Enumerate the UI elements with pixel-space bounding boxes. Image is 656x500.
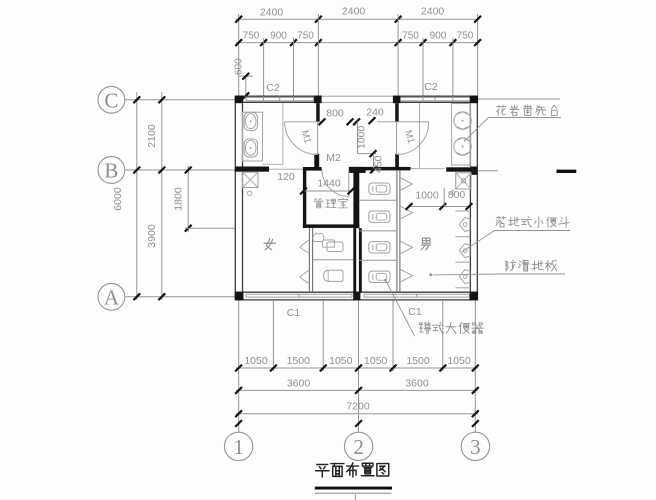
svg-text:1500: 1500 — [406, 355, 430, 367]
svg-text:240: 240 — [366, 107, 384, 119]
svg-text:3600: 3600 — [405, 377, 429, 389]
svg-text:800: 800 — [326, 108, 344, 120]
svg-text:750: 750 — [243, 31, 260, 42]
svg-text:2400: 2400 — [342, 6, 366, 18]
svg-text:750: 750 — [457, 31, 474, 42]
svg-text:750: 750 — [402, 31, 419, 42]
svg-text:3: 3 — [470, 435, 481, 459]
svg-text:120: 120 — [277, 171, 295, 183]
svg-text:600: 600 — [234, 58, 245, 75]
svg-text:M2: M2 — [326, 152, 341, 164]
svg-text:1050: 1050 — [329, 355, 353, 367]
svg-text:1000: 1000 — [356, 125, 368, 149]
svg-text:C: C — [104, 88, 118, 112]
svg-text:900: 900 — [270, 31, 287, 42]
svg-text:C1: C1 — [408, 306, 422, 318]
svg-text:900: 900 — [430, 31, 447, 42]
svg-text:1500: 1500 — [287, 355, 311, 367]
svg-text:2400: 2400 — [260, 7, 284, 19]
svg-text:450: 450 — [373, 155, 385, 173]
svg-text:2100: 2100 — [146, 124, 158, 148]
svg-text:B: B — [104, 159, 118, 183]
svg-text:3900: 3900 — [146, 224, 158, 248]
svg-text:C2: C2 — [424, 81, 438, 93]
svg-text:1050: 1050 — [364, 355, 388, 367]
svg-text:C1: C1 — [287, 307, 301, 319]
svg-text:2400: 2400 — [421, 6, 445, 18]
svg-text:7200: 7200 — [346, 401, 370, 413]
svg-text:3600: 3600 — [287, 377, 311, 389]
svg-text:1000: 1000 — [415, 190, 439, 202]
svg-text:C2: C2 — [266, 82, 280, 94]
svg-text:1: 1 — [233, 435, 244, 459]
svg-text:2: 2 — [353, 435, 364, 459]
svg-text:A: A — [104, 285, 120, 309]
svg-text:1440: 1440 — [317, 178, 341, 190]
svg-text:6000: 6000 — [112, 187, 124, 211]
svg-text:800: 800 — [448, 189, 466, 201]
svg-text:1050: 1050 — [447, 355, 471, 367]
svg-text:750: 750 — [297, 31, 314, 42]
svg-text:1050: 1050 — [244, 355, 268, 367]
svg-text:1800: 1800 — [173, 187, 185, 211]
